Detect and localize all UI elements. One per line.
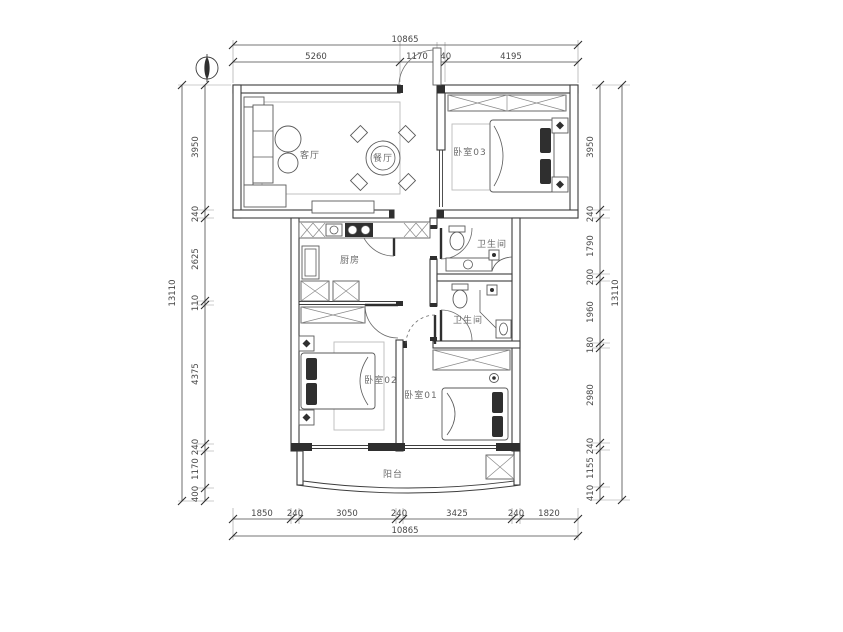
room-label-bathroom-bottom: 卫生间 [453,314,483,326]
nightstand [299,336,314,351]
wardrobe [448,95,566,111]
kitchen-sink [326,224,342,236]
dim-left-4: 4375 [191,363,201,385]
room-label-living: 客厅 [300,149,320,161]
bathroom-vanity [446,257,512,271]
room-label-balcony: 阳台 [383,468,403,480]
north-arrow-icon [196,54,218,82]
dim-bottom-3: 240 [391,509,407,519]
dining-room: 餐厅 [351,126,416,191]
sofa [244,97,286,207]
dim-total-height-left: 13110 [168,279,178,306]
dim-right-0: 3950 [586,136,596,158]
coffee-table [275,126,301,173]
dim-left-7: 400 [191,486,201,502]
fridge [302,246,319,279]
dim-right-5: 180 [586,337,596,353]
room-label-bedroom02: 卧室02 [364,374,397,386]
nightstand [552,118,568,133]
nightstand [552,177,568,192]
dim-top-3: 4195 [500,52,522,62]
room-label-bathroom-top: 卫生间 [477,238,507,250]
dim-total-width-bottom: 10865 [391,526,418,536]
dim-right-6: 2980 [586,384,596,406]
wardrobe [433,350,510,370]
dim-total-height-right: 13110 [611,279,621,306]
bed [490,120,554,192]
room-label-kitchen: 厨房 [340,254,360,266]
floor-plan: 10865 5260 1170 240 4195 1850 240 3050 2… [0,0,843,632]
dim-left-0: 3950 [191,136,201,158]
dim-left-3: 110 [191,295,201,311]
hall-closet [301,281,359,301]
bathroom-sink [496,320,511,338]
dim-right-1: 240 [586,206,596,222]
floor-plan-canvas: 10865 5260 1170 240 4195 1850 240 3050 2… [0,0,843,632]
toilet [452,284,468,308]
dim-right-8: 1155 [586,457,596,479]
dim-right-3: 200 [586,269,596,285]
dim-left-2: 2625 [191,248,201,270]
bathroom-top: 卫生间 [446,226,512,271]
wardrobe [301,307,365,323]
dim-bottom-1: 240 [287,509,303,519]
kitchen: 厨房 [299,222,430,301]
toilet [449,226,465,250]
kitchen-counter [299,222,430,238]
nightstand [299,410,314,425]
dim-bottom-6: 1820 [538,509,560,519]
room-label-bedroom03: 卧室03 [453,146,486,158]
stove [345,223,373,237]
bedroom-01: 卧室01 [404,350,510,440]
dim-right-7: 240 [586,438,596,454]
bedroom-02: 卧室02 [299,307,398,430]
dim-bottom-2: 3050 [336,509,358,519]
bed [442,388,508,440]
room-label-dining: 餐厅 [373,152,393,164]
bedroom02-door [365,305,398,338]
dim-bottom-4: 3425 [446,509,468,519]
bedroom-03: 卧室03 [448,95,568,192]
washing-machine [489,250,499,260]
dim-right-2: 1790 [586,235,596,257]
dim-left-5: 240 [191,439,201,455]
room-label-bedroom01: 卧室01 [404,389,437,401]
dim-bottom-5: 240 [508,509,524,519]
dim-total-width-top: 10865 [391,35,418,45]
dim-top-0: 5260 [305,52,327,62]
dim-right-9: 410 [586,485,596,501]
dim-left-6: 1170 [191,458,201,480]
tv-stand [312,201,374,213]
balcony-cabinet [486,455,514,479]
dim-left-1: 240 [191,206,201,222]
dim-right-4: 1960 [586,301,596,323]
stool [490,374,499,383]
dim-bottom-0: 1850 [251,509,273,519]
bathroom-bottom: 卫生间 [452,284,512,338]
balcony: 阳台 [297,451,520,493]
